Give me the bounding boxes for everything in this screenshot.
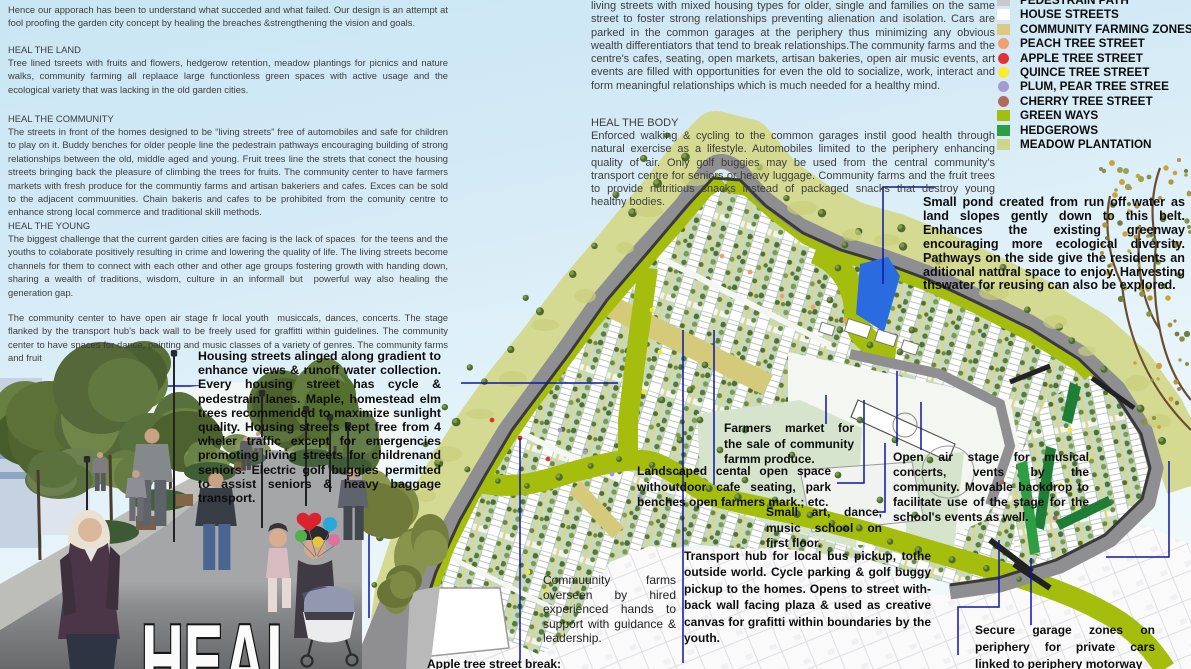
svg-text:HEAL: HEAL	[141, 602, 302, 669]
